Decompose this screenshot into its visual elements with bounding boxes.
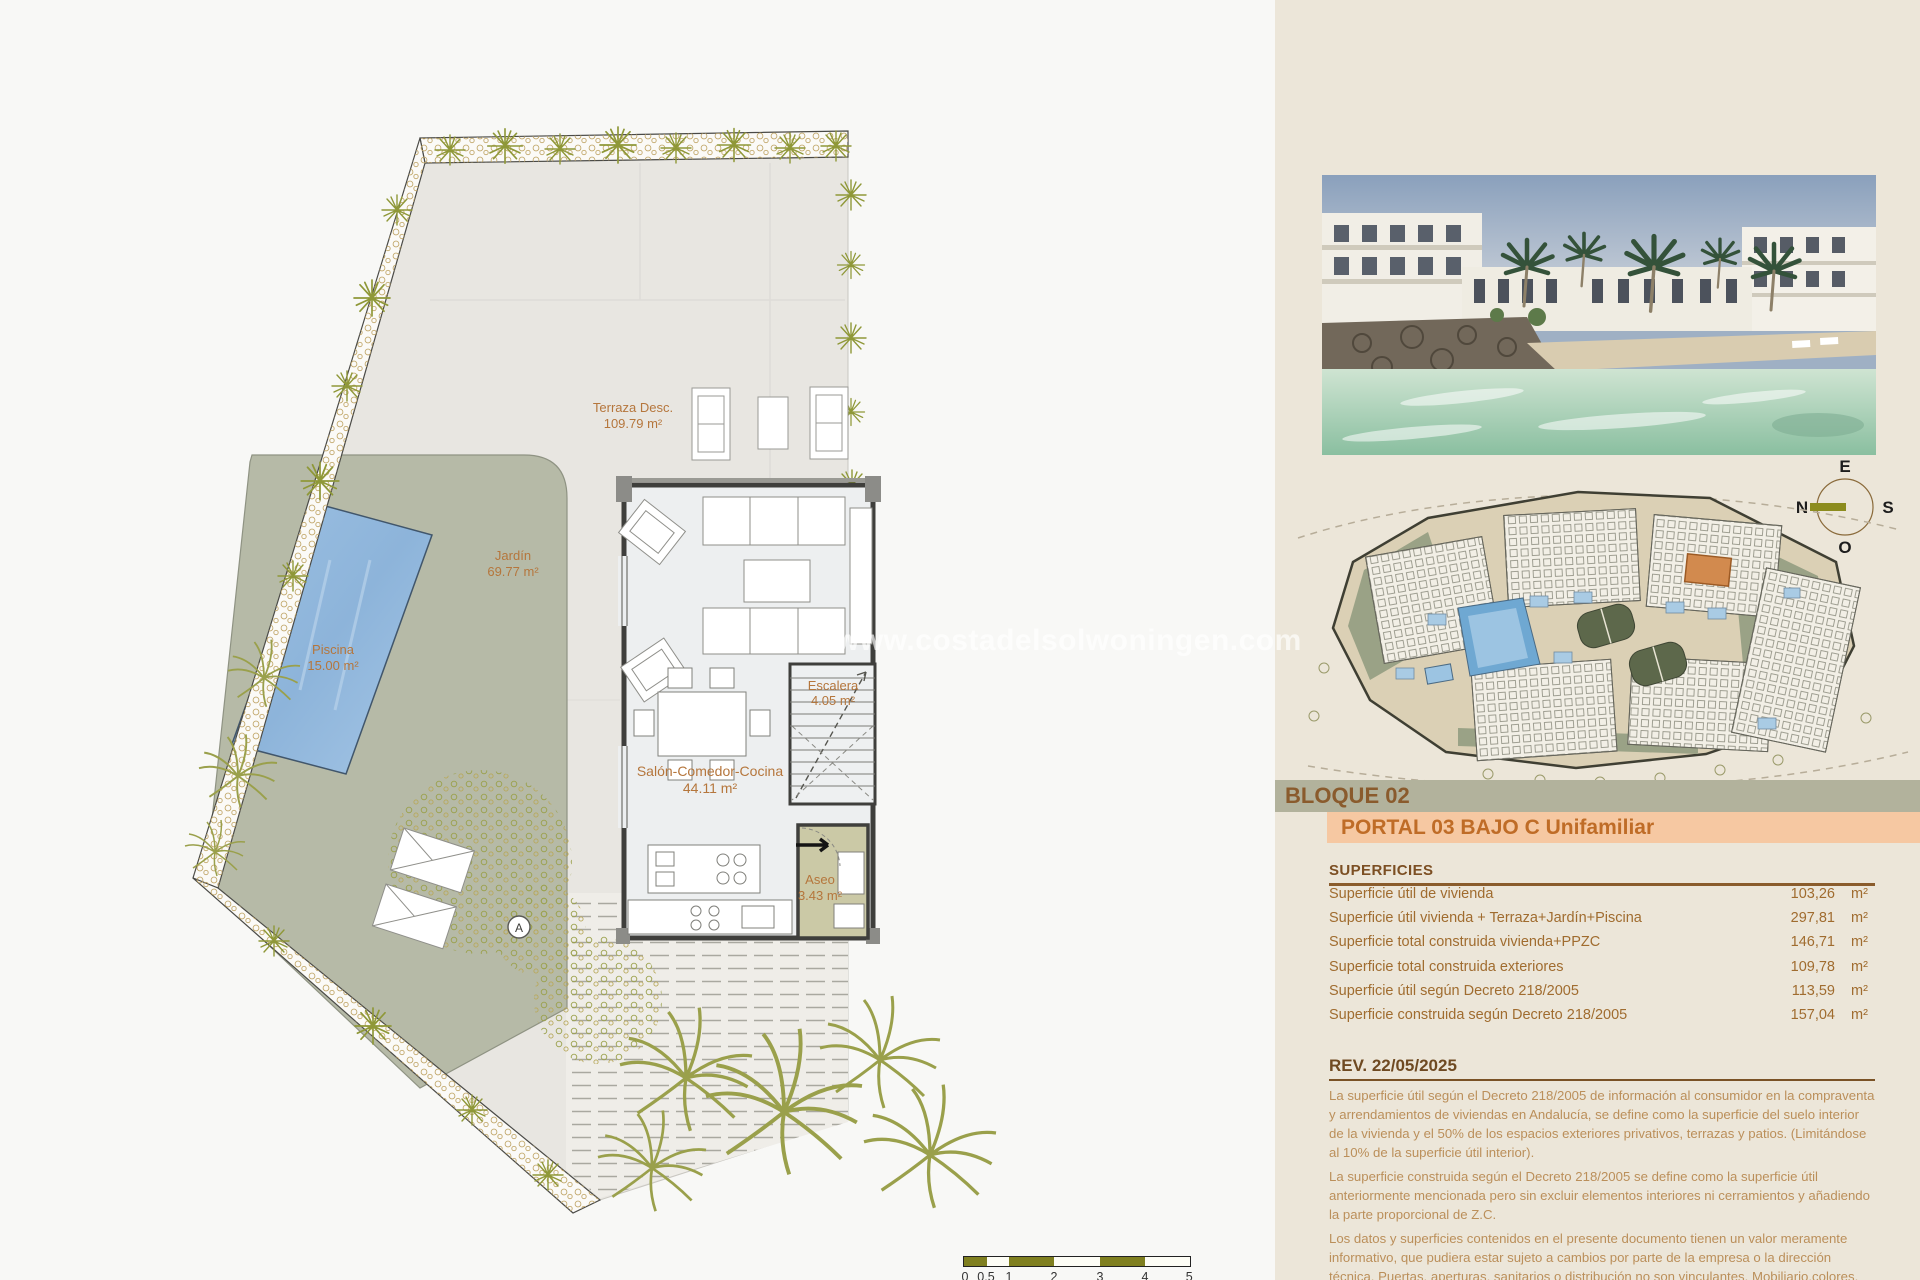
table-row: Superficie construida según Decreto 218/… bbox=[1329, 1007, 1875, 1031]
terrace-loungers bbox=[692, 387, 848, 460]
jardin-area: 69.77 m² bbox=[487, 564, 539, 579]
terraza-label: Terraza Desc. bbox=[593, 400, 673, 415]
bloque-title: BLOQUE 02 bbox=[1285, 783, 1410, 808]
house bbox=[616, 476, 881, 944]
salon-label: Salón-Comedor-Cocina bbox=[637, 763, 784, 779]
portal-band: PORTAL 03 BAJO C Unifamiliar bbox=[1327, 812, 1920, 843]
project-photo bbox=[1322, 175, 1876, 455]
scale-label: 2 bbox=[1051, 1270, 1058, 1280]
revision-block: REV. 22/05/2025 La superficie útil según… bbox=[1329, 1056, 1875, 1280]
legal-paragraph: La superficie útil según el Decreto 218/… bbox=[1329, 1086, 1875, 1162]
aseo-label: Aseo bbox=[805, 872, 835, 887]
table-row: Superficie útil de vivienda 103,26 m² bbox=[1329, 886, 1875, 910]
svg-text:A: A bbox=[515, 921, 523, 935]
superficies-title: SUPERFICIES bbox=[1329, 862, 1875, 886]
scale-bar: 0 0.5 1 2 3 4 5 m bbox=[963, 1256, 1191, 1267]
bloque-band: BLOQUE 02 bbox=[1275, 780, 1920, 812]
scale-label: 5 m bbox=[1186, 1270, 1196, 1280]
scale-bar-strip bbox=[963, 1256, 1191, 1267]
scale-label: 4 bbox=[1142, 1270, 1149, 1280]
table-row: Superficie total construida vivienda+PPZ… bbox=[1329, 934, 1875, 958]
plan-sheet: A Terraza Desc. 109.79 m² Jardín 69.77 m… bbox=[0, 0, 1920, 1280]
info-panel: E N S O bbox=[1275, 0, 1920, 1280]
revision-title: REV. 22/05/2025 bbox=[1329, 1056, 1875, 1081]
section-marker: A bbox=[508, 916, 530, 938]
scale-label: 3 bbox=[1097, 1270, 1104, 1280]
scale-label: 0 bbox=[962, 1270, 969, 1280]
escalera-area: 4.05 m² bbox=[811, 693, 856, 708]
table-row: Superficie útil según Decreto 218/2005 1… bbox=[1329, 983, 1875, 1007]
legal-paragraph: La superficie construida según el Decret… bbox=[1329, 1167, 1875, 1224]
watermark: www.costadelsolwoningen.com bbox=[836, 624, 1302, 658]
legal-paragraph: Los datos y superficies contenidos en el… bbox=[1329, 1229, 1875, 1280]
salon-area: 44.11 m² bbox=[683, 780, 738, 796]
scale-label: 0.5 bbox=[977, 1270, 994, 1280]
superficies-table: SUPERFICIES Superficie útil de vivienda … bbox=[1329, 862, 1875, 1031]
escalera-label: Escalera bbox=[808, 678, 859, 693]
portal-title: PORTAL 03 BAJO C Unifamiliar bbox=[1341, 816, 1654, 839]
scale-label: 1 bbox=[1006, 1270, 1013, 1280]
highlighted-unit bbox=[1685, 554, 1732, 586]
site-plan bbox=[1278, 468, 1918, 780]
table-row: Superficie útil vivienda + Terraza+Jardí… bbox=[1329, 910, 1875, 934]
piscina-area: 15.00 m² bbox=[307, 658, 359, 673]
table-row: Superficie total construida exteriores 1… bbox=[1329, 959, 1875, 983]
jardin-label: Jardín bbox=[495, 548, 531, 563]
piscina-label: Piscina bbox=[312, 642, 355, 657]
aseo-area: 3.43 m² bbox=[798, 888, 843, 903]
terraza-area: 109.79 m² bbox=[604, 416, 663, 431]
